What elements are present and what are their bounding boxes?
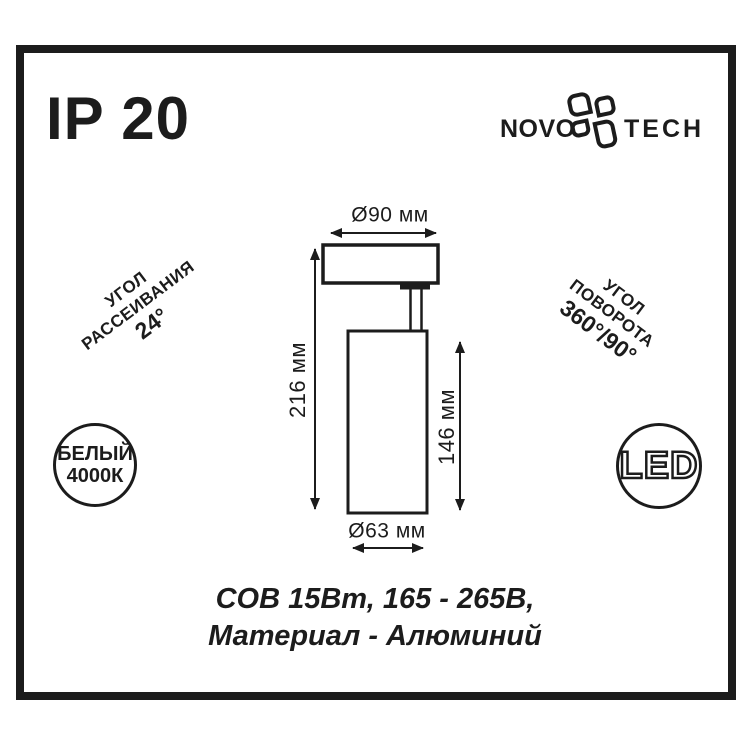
color-temp-line2: 4000К — [67, 465, 124, 487]
novotech-flower-icon — [566, 89, 620, 151]
led-badge-text: LED — [620, 447, 699, 485]
body-cylinder — [348, 331, 427, 513]
flower-petal-top-right — [593, 94, 617, 118]
dim-top-diameter: Ø90 мм — [351, 205, 428, 226]
spec-line-power: COB 15Вт, 165 - 265В, — [0, 581, 750, 618]
led-badge: LED — [616, 423, 702, 509]
dim-body-diameter: Ø63 мм — [348, 521, 425, 542]
dimension-drawing — [280, 200, 480, 560]
flower-petal-bottom-left — [569, 118, 591, 139]
flower-petal-top-left — [566, 91, 593, 118]
mounting-base — [323, 245, 438, 283]
dim-overall-height: 216 мм — [287, 342, 309, 418]
ip-rating-label: IP 20 — [46, 89, 190, 149]
stem-flange — [400, 283, 430, 290]
logo-text-novo: NOVO — [500, 117, 576, 142]
flower-petal-bottom-right — [592, 118, 618, 150]
spec-line-material: Материал - Алюминий — [0, 618, 750, 655]
logo-text-tech: TECH — [624, 117, 704, 142]
spec-sheet: IP 20 NOVO TECH УГОЛ РАССЕИВАНИЯ 24° УГО… — [0, 0, 750, 750]
color-temp-badge: БЕЛЫЙ 4000К — [53, 423, 137, 507]
color-temp-line1: БЕЛЫЙ — [57, 443, 133, 465]
novotech-logo: NOVO TECH — [500, 88, 712, 154]
dim-body-height: 146 мм — [436, 389, 458, 465]
spec-text: COB 15Вт, 165 - 265В, Материал - Алюмини… — [0, 581, 750, 655]
